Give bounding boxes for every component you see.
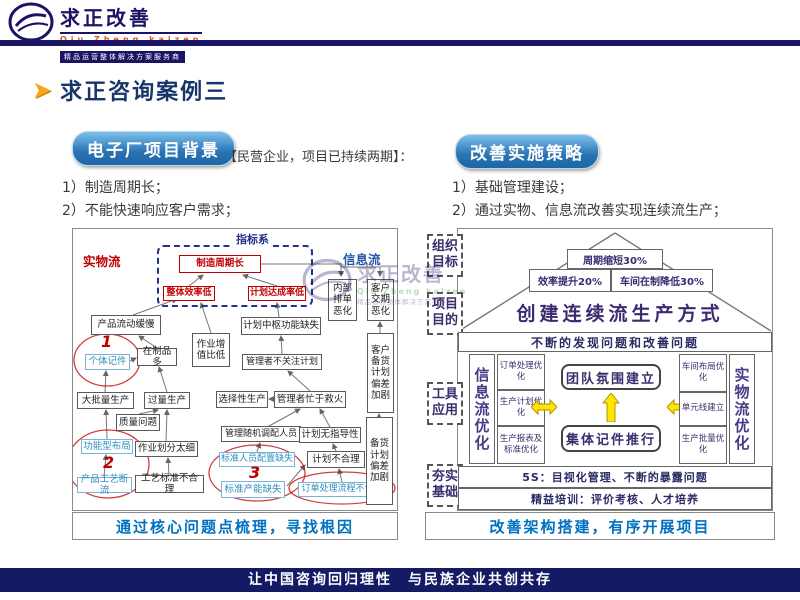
node-quality-problem: 质量问题	[116, 414, 160, 431]
watermark-tagline: 精品运营整体解决方案服务商	[357, 296, 467, 306]
node-work-split-too-fine: 作业划分太细	[135, 441, 198, 457]
left-bullets: 1）制造周期长； 2）不能快速响应客户需求；	[62, 177, 239, 223]
banner-find-improve: 不断的发现问题和改善问题	[458, 332, 772, 352]
node-overall-efficiency-low: 整体效率低	[163, 286, 215, 301]
item-order-processing: 订单处理优化	[497, 354, 545, 390]
roof-wip-down: 车间在制降低30%	[611, 269, 713, 292]
item-workshop-layout: 车间布局优化	[679, 354, 727, 392]
node-customer-stock-plan-deviation: 客户备货计划偏差加剧	[367, 333, 394, 413]
right-bullet-2: 2）通过实物、信息流改善实现连续流生产；	[452, 200, 727, 223]
roof-slogan: 创建连续流生产方式	[480, 296, 760, 328]
left-section-pill: 电子厂项目背景	[72, 131, 235, 166]
slide: { "header": { "logo_title": "求正改善", "log…	[0, 0, 800, 600]
node-selective-production: 选择性生产	[216, 391, 268, 408]
node-piece-rate-pay: 个体记件	[85, 354, 130, 370]
roof-cycle-reduction: 周期缩短30%	[567, 249, 663, 269]
page-title: 求正咨询案例三	[60, 74, 228, 106]
node-plan-rate-low: 计划达成率低	[248, 286, 306, 301]
center-team-atmosphere: 团队氛围建立	[561, 364, 661, 390]
watermark: 求正改善 Qiu Zheng kaizen 精品运营整体解决方案服务商	[302, 258, 497, 306]
center-collective-piece-rate: 集体记件推行	[561, 425, 661, 452]
footer-slogan: 让中国咨询回归理性 与民族企业共创共存	[0, 568, 800, 592]
node-manager-ignores-plan: 管理者不关注计划	[242, 354, 322, 370]
item-batch-size: 生产批量优化	[679, 426, 727, 464]
right-bullet-1: 1）基础管理建设；	[452, 177, 727, 200]
label-physical-flow: 实物流	[83, 251, 121, 270]
node-random-staffing: 管理随机调配人员	[221, 426, 301, 442]
node-process-flow-break: 产品工艺断流	[77, 477, 132, 493]
node-mfg-cycle-long: 制造周期长	[179, 255, 261, 273]
marker-number-2: 2	[103, 455, 114, 471]
right-diagram-caption: 改善架构搭建，有序开展项目	[425, 512, 775, 540]
company-logo: 求正改善 Qiu Zheng kaizen 精品运营整体解决方案服务商	[8, 2, 202, 63]
node-wip-high: 在制品多	[137, 348, 177, 366]
exchange-arrow-left-icon	[531, 398, 557, 416]
left-diagram-caption: 通过核心问题点梳理，寻找根因	[72, 512, 398, 540]
node-stock-plan-deviation: 备货计划偏差加剧	[366, 417, 393, 505]
logo-title: 求正改善	[60, 2, 202, 34]
title-arrow-icon: ➤	[32, 78, 52, 102]
physical-flow-column-title: 实物流优化	[729, 354, 755, 464]
watermark-emblem-icon	[302, 258, 352, 306]
node-manager-firefighting: 管理者忙于救火	[274, 391, 346, 408]
side-label-tools: 工具应用	[427, 382, 463, 425]
node-plan-unreasonable: 计划不合理	[307, 451, 365, 468]
info-flow-column-title: 信息流优化	[469, 354, 495, 464]
node-value-ratio-low: 作业增值比低	[192, 333, 230, 367]
marker-number-3: 3	[249, 465, 260, 481]
logo-tagline: 精品运营整体解决方案服务商	[60, 51, 185, 63]
marker-number-1: 1	[101, 334, 112, 350]
right-section-pill: 改善实施策略	[455, 134, 599, 169]
base-row-lean-training: 精益培训：评价考核、人才培养	[458, 488, 772, 510]
node-process-std-bad: 工艺标准不合理	[135, 475, 204, 493]
base-row-5s: 5S：目视化管理、不断的暴露问题	[458, 466, 772, 488]
label-indicator-system: 指标系	[233, 231, 272, 247]
node-plan-no-guidance: 计划无指导性	[299, 427, 361, 443]
watermark-subtitle: Qiu Zheng kaizen	[357, 287, 467, 296]
item-cell-line: 单元线建立	[679, 392, 727, 426]
up-arrow-icon	[602, 393, 620, 422]
node-functional-layout: 功能型布局	[81, 439, 133, 454]
node-big-batch: 大批量生产	[77, 392, 134, 409]
node-std-capacity-missing: 标准产能缺失	[221, 481, 285, 498]
right-bullets: 1）基础管理建设； 2）通过实物、信息流改善实现连续流生产；	[452, 177, 727, 223]
left-section-note: 【民营企业，项目已持续两期】：	[224, 146, 413, 165]
node-over-production: 过量生产	[144, 392, 190, 409]
left-bullet-1: 1）制造周期长；	[62, 177, 239, 200]
roof-efficiency-up: 效率提升20%	[529, 269, 611, 292]
watermark-title: 求正改善	[357, 258, 467, 287]
left-bullet-2: 2）不能快速响应客户需求；	[62, 200, 239, 223]
header-rule	[0, 40, 800, 46]
item-report-standard: 生产报表及标准优化	[497, 426, 545, 464]
node-plan-hub-missing: 计划中枢功能缺失	[241, 317, 321, 335]
